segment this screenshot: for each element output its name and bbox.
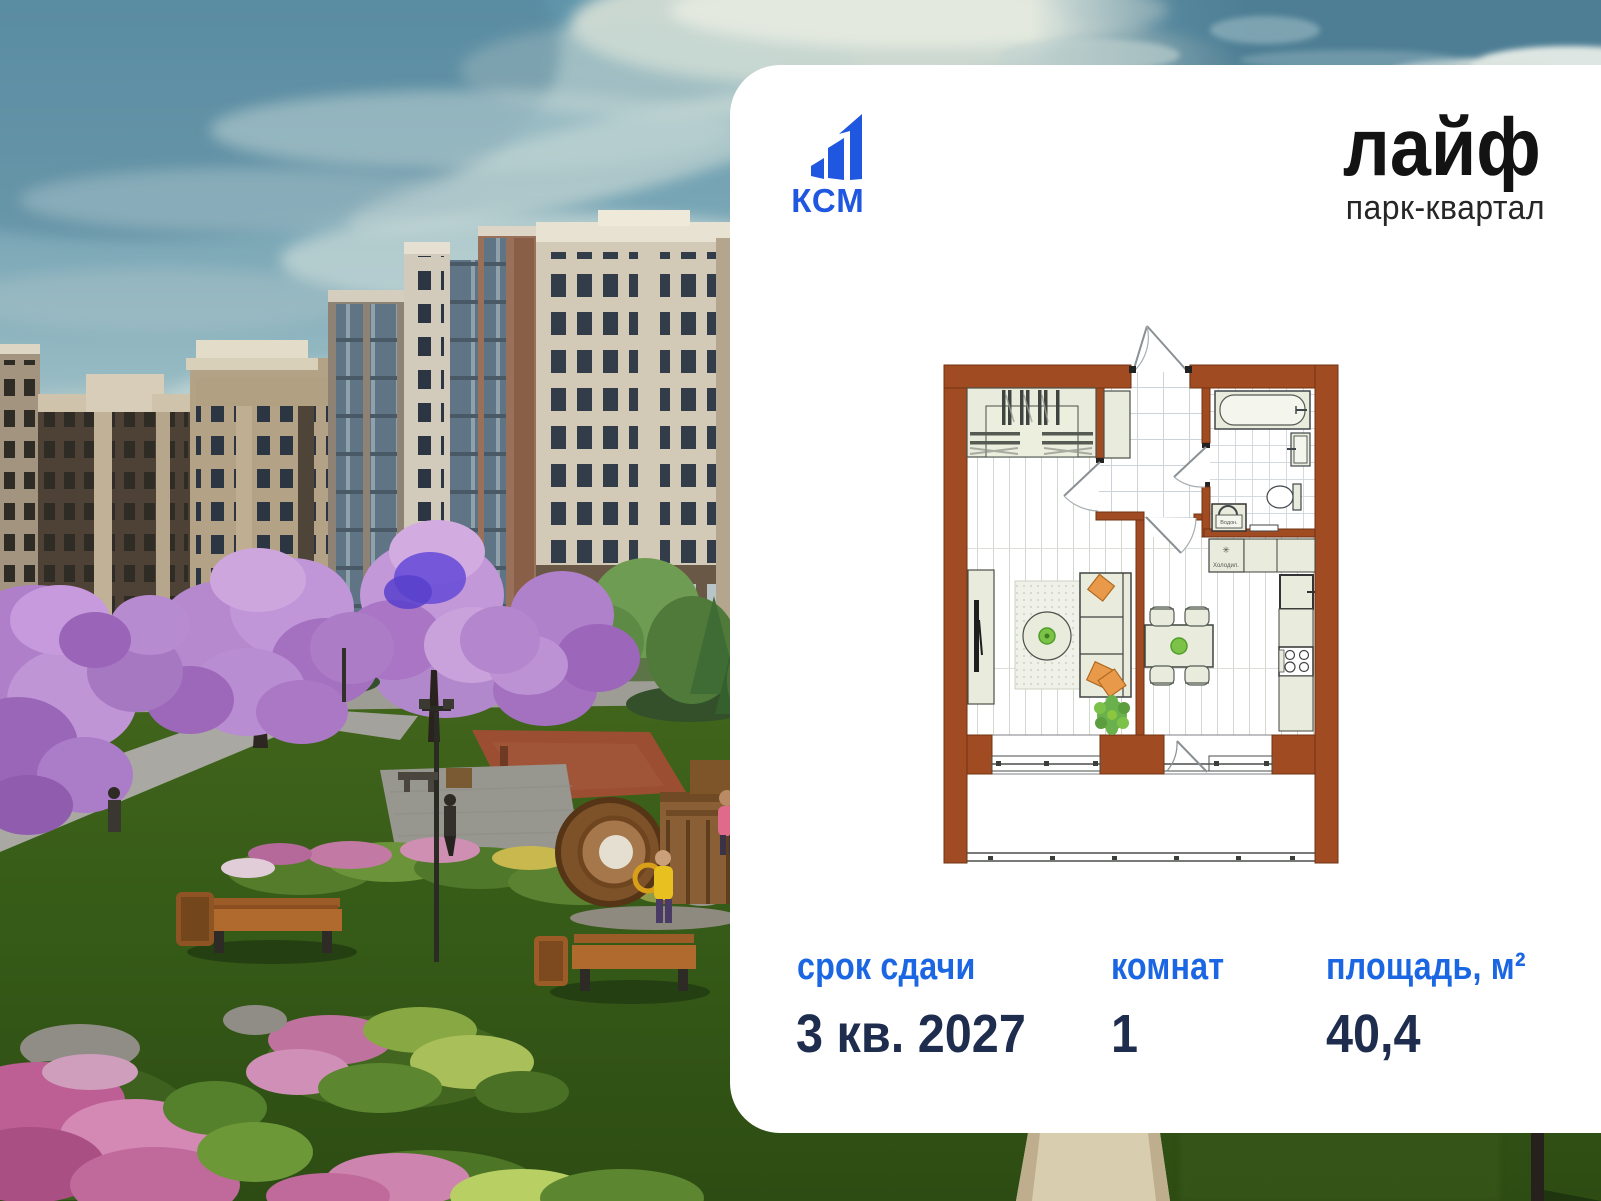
svg-text:КСМ: КСМ bbox=[791, 182, 865, 219]
svg-text:✳: ✳ bbox=[1222, 545, 1230, 555]
svg-text:Водон.: Водон. bbox=[1220, 520, 1238, 526]
svg-text:Холодил.: Холодил. bbox=[1213, 563, 1239, 569]
